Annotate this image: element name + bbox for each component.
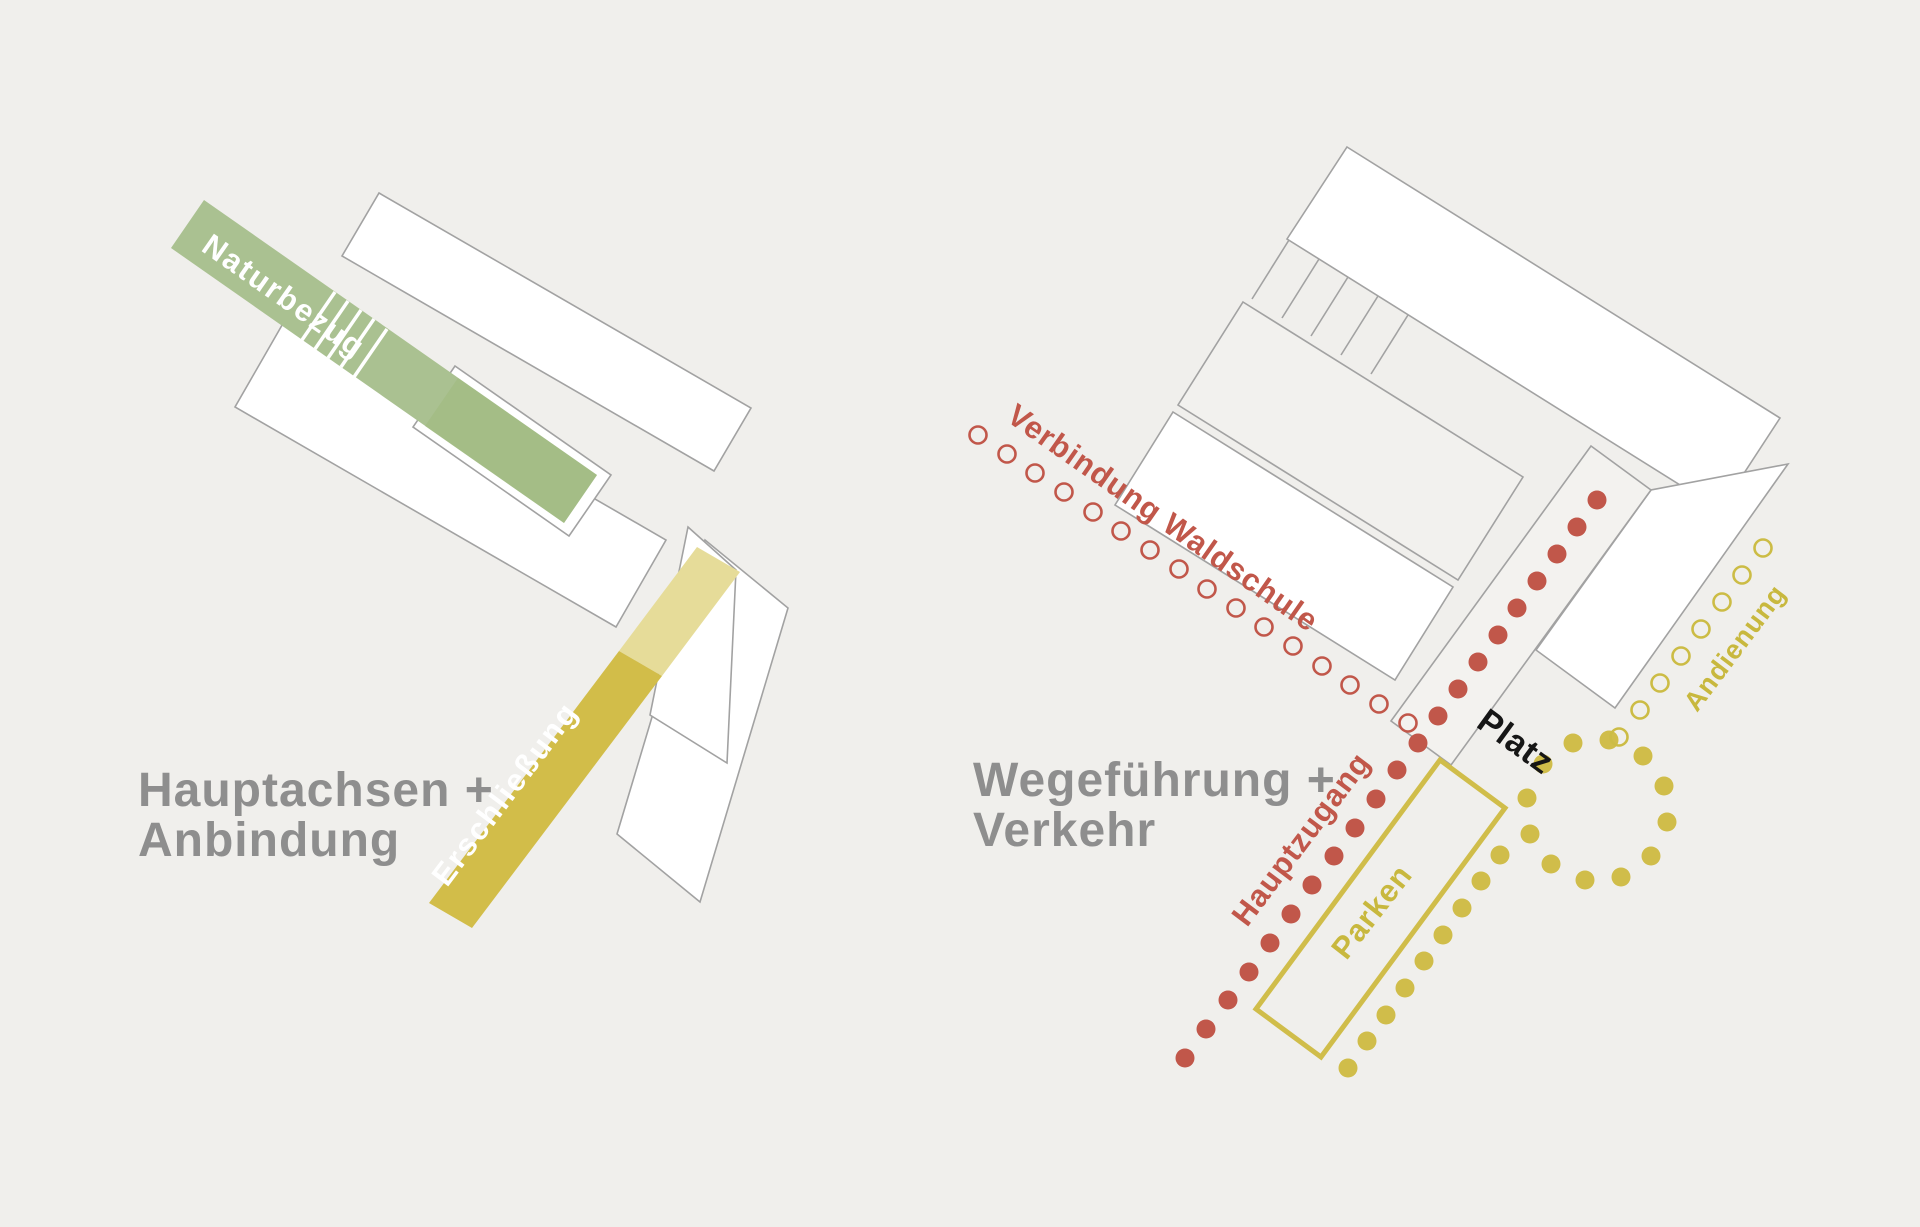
route-dot-marker bbox=[1658, 813, 1677, 832]
route-dot-marker bbox=[1588, 491, 1607, 510]
route-dot-marker bbox=[1489, 626, 1508, 645]
route-dot-marker bbox=[1469, 653, 1488, 672]
route-dot-marker bbox=[1548, 545, 1567, 564]
route-circle-marker bbox=[999, 446, 1016, 463]
route-dot-marker bbox=[1576, 871, 1595, 890]
route-dot-marker bbox=[1346, 819, 1365, 838]
route-dot-marker bbox=[1634, 747, 1653, 766]
route-dot-marker bbox=[1600, 731, 1619, 750]
route-circle-marker bbox=[1734, 567, 1751, 584]
site-diagram-svg: Naturbezug Erschließung Hauptachsen + An… bbox=[0, 0, 1920, 1227]
route-circle-marker bbox=[1693, 621, 1710, 638]
route-dot-marker bbox=[1434, 926, 1453, 945]
route-dot-marker bbox=[1240, 963, 1259, 982]
left-diagram: Naturbezug Erschließung Hauptachsen + An… bbox=[138, 193, 788, 928]
route-dot-marker bbox=[1303, 876, 1322, 895]
route-dot-marker bbox=[1521, 825, 1540, 844]
route-circle-marker bbox=[1199, 581, 1216, 598]
route-dot-marker bbox=[1282, 905, 1301, 924]
route-dot-marker bbox=[1453, 899, 1472, 918]
route-circle-marker bbox=[1314, 658, 1331, 675]
right-title-line1: Wegeführung + bbox=[973, 754, 1336, 807]
route-dot-marker bbox=[1449, 680, 1468, 699]
route-dot-marker bbox=[1388, 761, 1407, 780]
route-dot-marker bbox=[1528, 572, 1547, 591]
left-title-line2: Anbindung bbox=[138, 814, 400, 867]
yellow-filled-parken-chain bbox=[1339, 846, 1510, 1078]
route-circle-marker bbox=[1228, 600, 1245, 617]
route-dot-marker bbox=[1176, 1049, 1195, 1068]
route-circle-marker bbox=[1632, 702, 1649, 719]
route-dot-marker bbox=[1642, 847, 1661, 866]
route-dot-marker bbox=[1415, 952, 1434, 971]
route-dot-marker bbox=[1568, 518, 1587, 537]
route-dot-marker bbox=[1358, 1032, 1377, 1051]
route-circle-marker bbox=[1342, 677, 1359, 694]
label-parken: Parken bbox=[1324, 858, 1419, 966]
route-circle-marker bbox=[1755, 540, 1772, 557]
hatch-line bbox=[1341, 296, 1378, 355]
route-dot-marker bbox=[1518, 789, 1537, 808]
right-title-line2: Verkehr bbox=[973, 804, 1156, 857]
route-dot-marker bbox=[1409, 734, 1428, 753]
route-dot-marker bbox=[1219, 991, 1238, 1010]
route-dot-marker bbox=[1396, 979, 1415, 998]
route-dot-marker bbox=[1542, 855, 1561, 874]
hatch-line bbox=[1371, 315, 1408, 374]
route-dot-marker bbox=[1377, 1006, 1396, 1025]
route-dot-marker bbox=[1339, 1059, 1358, 1078]
route-circle-marker bbox=[1652, 675, 1669, 692]
route-circle-marker bbox=[1171, 561, 1188, 578]
route-dot-marker bbox=[1197, 1020, 1216, 1039]
route-dot-marker bbox=[1564, 734, 1583, 753]
route-circle-marker bbox=[1056, 484, 1073, 501]
hatch-line bbox=[1282, 259, 1319, 318]
diagram-stage: Naturbezug Erschließung Hauptachsen + An… bbox=[0, 0, 1920, 1227]
label-andienung: Andienung bbox=[1678, 579, 1792, 717]
hatch-line bbox=[1311, 277, 1348, 336]
route-dot-marker bbox=[1472, 872, 1491, 891]
route-dot-marker bbox=[1491, 846, 1510, 865]
route-dot-marker bbox=[1261, 934, 1280, 953]
route-dot-marker bbox=[1508, 599, 1527, 618]
route-dot-marker bbox=[1429, 707, 1448, 726]
hatch-line bbox=[1252, 240, 1289, 299]
route-circle-marker bbox=[1027, 465, 1044, 482]
route-dot-marker bbox=[1325, 847, 1344, 866]
label-platz: Platz bbox=[1470, 702, 1561, 782]
route-circle-marker bbox=[1285, 638, 1302, 655]
route-circle-marker bbox=[1256, 619, 1273, 636]
route-dot-marker bbox=[1367, 790, 1386, 809]
route-dot-marker bbox=[1655, 777, 1674, 796]
route-circle-marker bbox=[1142, 542, 1159, 559]
route-dot-marker bbox=[1612, 868, 1631, 887]
route-circle-marker bbox=[1714, 594, 1731, 611]
left-title-line1: Hauptachsen + bbox=[138, 764, 494, 817]
route-circle-marker bbox=[1371, 696, 1388, 713]
route-circle-marker bbox=[1673, 648, 1690, 665]
right-diagram: Verbindung Waldschule Platz Hauptzugang … bbox=[970, 147, 1793, 1078]
route-circle-marker bbox=[970, 427, 987, 444]
route-circle-marker bbox=[1085, 504, 1102, 521]
route-circle-marker bbox=[1113, 523, 1130, 540]
